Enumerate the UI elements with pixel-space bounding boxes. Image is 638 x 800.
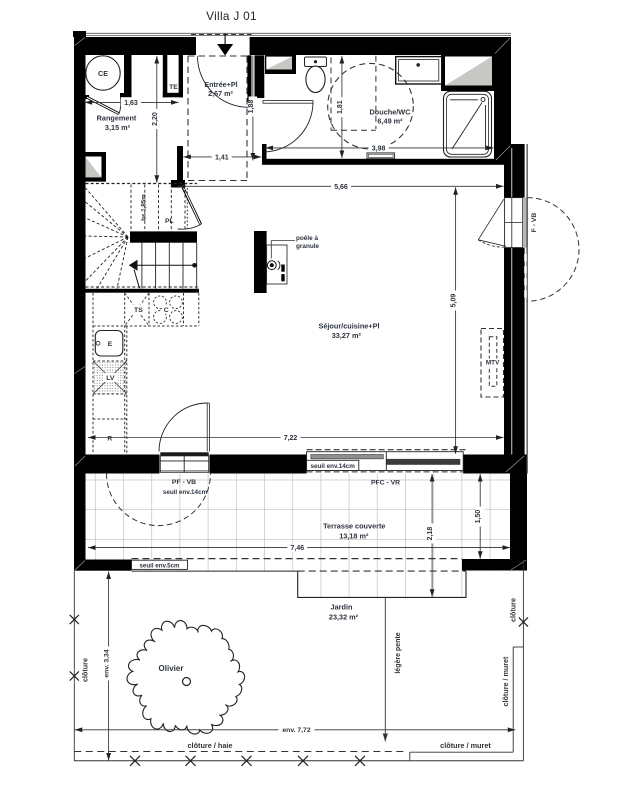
svg-text:7,22: 7,22 [284, 435, 298, 442]
svg-text:C: C [164, 307, 169, 314]
svg-text:seuil env.14cm: seuil env.14cm [311, 463, 356, 470]
svg-text:1,41: 1,41 [215, 154, 229, 161]
svg-text:7,46: 7,46 [290, 545, 304, 552]
svg-text:TE: TE [169, 84, 178, 91]
svg-text:23,32 m²: 23,32 m² [329, 612, 359, 621]
svg-text:3,15 m²: 3,15 m² [105, 123, 131, 132]
svg-text:clôture / muret: clôture / muret [501, 656, 510, 707]
svg-text:clôture / muret: clôture / muret [440, 741, 491, 750]
svg-text:env. 3,34: env. 3,34 [104, 649, 111, 677]
svg-text:6,49 m²: 6,49 m² [377, 116, 403, 125]
svg-text:PL: PL [165, 218, 174, 225]
svg-text:clôture: clôture [80, 658, 89, 682]
svg-text:13,18 m²: 13,18 m² [339, 531, 369, 540]
svg-text:Terrasse couverte: Terrasse couverte [323, 522, 385, 531]
svg-text:Séjour/cuisine+Pl: Séjour/cuisine+Pl [318, 321, 379, 330]
svg-text:bs 1,85m: bs 1,85m [141, 194, 148, 221]
svg-text:LV: LV [106, 375, 115, 382]
svg-text:PF - VB: PF - VB [172, 479, 196, 486]
svg-text:seuil env.5cm: seuil env.5cm [139, 562, 180, 569]
svg-text:granule: granule [296, 243, 320, 250]
svg-text:R: R [107, 436, 112, 443]
svg-text:PFC - VR: PFC - VR [371, 479, 400, 486]
svg-text:33,27 m²: 33,27 m² [332, 331, 362, 340]
svg-text:5,09: 5,09 [451, 294, 458, 308]
svg-text:poêle à: poêle à [296, 235, 318, 242]
svg-text:Villa J 01: Villa J 01 [206, 9, 257, 23]
svg-text:1,88: 1,88 [248, 100, 255, 114]
svg-text:légère pente: légère pente [395, 632, 402, 673]
svg-text:1,81: 1,81 [337, 100, 344, 114]
svg-text:Entrée+Pl: Entrée+Pl [204, 80, 237, 89]
svg-text:seuil env.14cm: seuil env.14cm [163, 489, 208, 496]
svg-text:1,50: 1,50 [475, 510, 482, 524]
svg-text:2,18: 2,18 [427, 527, 434, 541]
svg-text:2,67 m²: 2,67 m² [208, 89, 233, 98]
svg-text:5,66: 5,66 [334, 184, 348, 191]
svg-text:Jardin: Jardin [331, 603, 353, 612]
svg-text:clôture: clôture [509, 598, 518, 622]
svg-text:MTV: MTV [486, 360, 500, 367]
svg-text:clôture / haie: clôture / haie [187, 741, 232, 750]
svg-text:TS: TS [134, 307, 143, 314]
svg-text:E: E [108, 341, 113, 348]
svg-text:Rangement: Rangement [97, 114, 137, 123]
svg-text:CE: CE [98, 69, 108, 78]
svg-text:Olivier: Olivier [159, 664, 184, 673]
svg-text:env. 7,72: env. 7,72 [282, 727, 310, 734]
svg-text:1,63: 1,63 [124, 100, 138, 107]
svg-text:F - VB: F - VB [531, 213, 538, 233]
svg-text:2,20: 2,20 [152, 112, 159, 126]
svg-text:Douche/WC: Douche/WC [370, 108, 412, 117]
svg-text:3,98: 3,98 [372, 145, 386, 152]
